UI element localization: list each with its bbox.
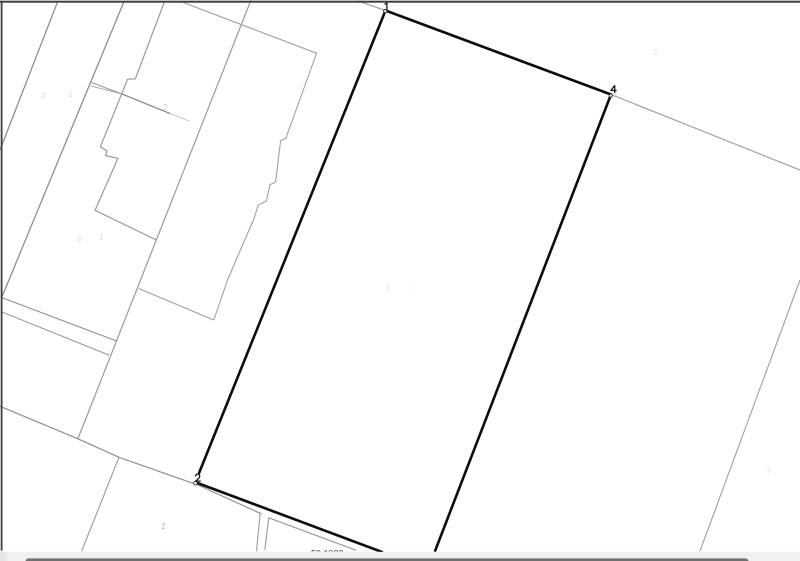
svg-text:?: ?: [766, 467, 771, 476]
svg-text:1: 1: [99, 233, 104, 242]
svg-text:1: 1: [386, 283, 391, 292]
svg-text:2: 2: [77, 235, 82, 244]
svg-text:2: 2: [41, 91, 46, 100]
svg-text:2: 2: [161, 522, 166, 531]
svg-text:1: 1: [69, 90, 74, 99]
svg-text::: :: [414, 282, 416, 291]
svg-text:2: 2: [653, 48, 658, 57]
svg-text:2: 2: [163, 103, 168, 112]
